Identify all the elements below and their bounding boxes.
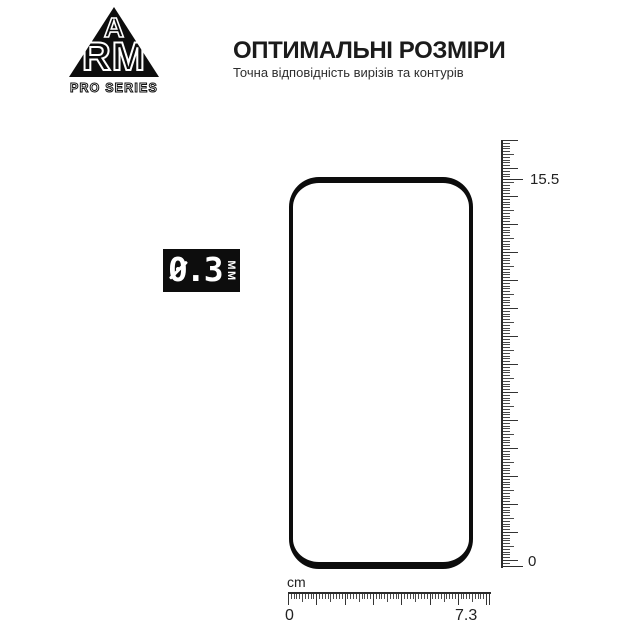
ruler-tick bbox=[503, 479, 510, 480]
ruler-tick bbox=[370, 594, 371, 599]
ruler-tick bbox=[503, 179, 523, 180]
ruler-tick bbox=[503, 372, 510, 373]
ruler-tick bbox=[466, 594, 467, 599]
ruler-tick bbox=[503, 146, 510, 147]
thickness-unit: MM bbox=[225, 260, 237, 281]
ruler-tick bbox=[503, 412, 510, 413]
ruler-tick bbox=[503, 417, 510, 418]
ruler-tick bbox=[503, 311, 510, 312]
horizontal-ruler-max-label: 7.3 bbox=[455, 607, 477, 625]
ruler-tick bbox=[503, 330, 510, 331]
ruler-tick bbox=[503, 252, 518, 253]
ruler-tick bbox=[373, 594, 374, 605]
ruler-tick bbox=[503, 300, 510, 301]
ruler-tick bbox=[503, 381, 510, 382]
ruler-tick bbox=[503, 339, 510, 340]
ruler-tick bbox=[503, 255, 510, 256]
ruler-tick bbox=[503, 143, 510, 144]
ruler-tick bbox=[503, 496, 510, 497]
ruler-tick bbox=[503, 414, 510, 415]
ruler-tick bbox=[503, 521, 510, 522]
ruler-tick bbox=[503, 260, 510, 261]
ruler-tick bbox=[313, 594, 314, 599]
ruler-tick bbox=[503, 224, 518, 225]
ruler-tick bbox=[503, 277, 510, 278]
ruler-tick bbox=[503, 193, 510, 194]
ruler-tick bbox=[432, 594, 433, 599]
ruler-tick bbox=[503, 470, 510, 471]
ruler-tick bbox=[396, 594, 397, 599]
ruler-tick bbox=[503, 221, 510, 222]
ruler-tick bbox=[455, 594, 456, 599]
ruler-tick bbox=[503, 557, 510, 558]
ruler-tick bbox=[503, 431, 510, 432]
ruler-tick bbox=[367, 594, 368, 599]
ruler-tick bbox=[330, 594, 331, 602]
ruler-tick bbox=[503, 532, 518, 533]
ruler-tick bbox=[503, 540, 510, 541]
ruler-tick bbox=[503, 238, 514, 239]
ruler-tick bbox=[503, 487, 510, 488]
ruler-tick bbox=[503, 420, 518, 421]
ruler-tick bbox=[503, 353, 510, 354]
ruler-tick bbox=[503, 462, 514, 463]
ruler-tick bbox=[489, 594, 490, 605]
ruler-tick bbox=[421, 594, 422, 599]
ruler-tick bbox=[415, 594, 416, 602]
ruler-tick bbox=[503, 375, 510, 376]
ruler-tick bbox=[503, 364, 518, 365]
ruler-tick bbox=[503, 526, 510, 527]
ruler-tick bbox=[503, 325, 510, 326]
ruler-tick bbox=[339, 594, 340, 599]
ruler-tick bbox=[503, 202, 510, 203]
ruler-tick bbox=[503, 358, 510, 359]
ruler-tick bbox=[503, 367, 510, 368]
ruler-tick bbox=[503, 283, 510, 284]
vertical-ruler bbox=[501, 140, 527, 568]
ruler-tick bbox=[503, 437, 510, 438]
ruler-tick bbox=[503, 538, 510, 539]
ruler-tick bbox=[503, 535, 510, 536]
ruler-tick bbox=[503, 398, 510, 399]
infographic-canvas: A RM PRO SERIES ОПТИМАЛЬНІ РОЗМІРИ Точна… bbox=[0, 0, 630, 630]
ruler-tick bbox=[503, 151, 510, 152]
ruler-tick bbox=[390, 594, 391, 599]
ruler-tick bbox=[336, 594, 337, 599]
ruler-tick bbox=[356, 594, 357, 599]
ruler-tick bbox=[435, 594, 436, 599]
ruler-tick bbox=[401, 594, 402, 605]
ruler-tick bbox=[503, 448, 518, 449]
ruler-tick bbox=[393, 594, 394, 599]
ruler-tick bbox=[503, 154, 514, 155]
ruler-tick bbox=[503, 182, 514, 183]
ruler-tick bbox=[503, 498, 510, 499]
ruler-tick bbox=[503, 543, 510, 544]
ruler-tick bbox=[503, 272, 510, 273]
ruler-tick bbox=[404, 594, 405, 599]
ruler-tick bbox=[503, 328, 510, 329]
ruler-tick bbox=[503, 297, 510, 298]
ruler-tick bbox=[503, 165, 510, 166]
ruler-tick bbox=[452, 594, 453, 599]
ruler-tick bbox=[362, 594, 363, 599]
ruler-tick bbox=[503, 473, 510, 474]
ruler-tick bbox=[503, 336, 518, 337]
ruler-tick bbox=[503, 459, 510, 460]
ruler-tick bbox=[503, 213, 510, 214]
ruler-tick bbox=[503, 319, 510, 320]
ruler-tick bbox=[302, 594, 303, 602]
ruler-tick bbox=[291, 594, 292, 599]
ruler-tick bbox=[503, 308, 518, 309]
ruler-tick bbox=[333, 594, 334, 599]
ruler-tick bbox=[413, 594, 414, 599]
ruler-tick bbox=[503, 305, 510, 306]
ruler-tick bbox=[503, 482, 510, 483]
ruler-tick bbox=[503, 515, 510, 516]
ruler-tick bbox=[503, 196, 518, 197]
ruler-tick bbox=[503, 274, 510, 275]
page-subtitle: Точна відповідність вирізів та контурів bbox=[233, 66, 505, 80]
ruler-tick bbox=[299, 594, 300, 599]
ruler-tick bbox=[503, 566, 523, 567]
ruler-tick bbox=[478, 594, 479, 599]
ruler-tick bbox=[342, 594, 343, 599]
ruler-tick bbox=[503, 386, 510, 387]
ruler-tick bbox=[503, 347, 510, 348]
ruler-tick bbox=[503, 493, 510, 494]
ruler-tick bbox=[503, 370, 510, 371]
ruler-tick bbox=[503, 232, 510, 233]
ruler-tick bbox=[503, 476, 518, 477]
ruler-tick bbox=[503, 344, 510, 345]
ruler-tick bbox=[503, 218, 510, 219]
ruler-tick bbox=[407, 594, 408, 599]
ruler-tick bbox=[503, 227, 510, 228]
ruler-tick bbox=[503, 442, 510, 443]
ruler-tick bbox=[503, 560, 518, 561]
ruler-tick bbox=[503, 501, 510, 502]
screen-protector-outline bbox=[289, 177, 473, 569]
ruler-tick bbox=[503, 434, 514, 435]
ruler-tick bbox=[427, 594, 428, 599]
ruler-tick bbox=[503, 294, 514, 295]
horizontal-ruler-unit-label: cm bbox=[287, 574, 306, 590]
ruler-tick bbox=[503, 246, 510, 247]
page-title: ОПТИМАЛЬНІ РОЗМІРИ bbox=[233, 40, 505, 62]
ruler-tick bbox=[503, 468, 510, 469]
ruler-tick bbox=[316, 594, 317, 605]
thickness-badge: 0.3 MM bbox=[163, 249, 240, 292]
ruler-tick bbox=[503, 504, 518, 505]
ruler-tick bbox=[503, 440, 510, 441]
ruler-tick bbox=[503, 157, 510, 158]
ruler-tick bbox=[483, 594, 484, 599]
ruler-tick bbox=[503, 465, 510, 466]
ruler-tick bbox=[503, 288, 510, 289]
ruler-tick bbox=[376, 594, 377, 599]
ruler-tick bbox=[503, 342, 510, 343]
ruler-tick bbox=[503, 378, 514, 379]
ruler-tick bbox=[503, 176, 510, 177]
ruler-tick bbox=[430, 594, 431, 605]
ruler-tick bbox=[503, 230, 510, 231]
ruler-tick bbox=[503, 392, 518, 393]
ruler-tick bbox=[503, 286, 510, 287]
ruler-tick bbox=[503, 316, 510, 317]
ruler-tick bbox=[503, 322, 514, 323]
ruler-tick bbox=[503, 456, 510, 457]
ruler-tick bbox=[503, 162, 510, 163]
ruler-tick bbox=[503, 384, 510, 385]
ruler-tick bbox=[503, 241, 510, 242]
ruler-tick bbox=[410, 594, 411, 599]
ruler-tick bbox=[503, 266, 514, 267]
ruler-tick bbox=[463, 594, 464, 599]
ruler-tick bbox=[503, 174, 510, 175]
ruler-tick bbox=[359, 594, 360, 602]
ruler-tick bbox=[353, 594, 354, 599]
ruler-tick bbox=[503, 529, 510, 530]
ruler-tick bbox=[503, 426, 510, 427]
ruler-tick bbox=[441, 594, 442, 599]
ruler-tick bbox=[503, 207, 510, 208]
ruler-tick bbox=[503, 484, 510, 485]
ruler-tick bbox=[387, 594, 388, 602]
ruler-tick bbox=[305, 594, 306, 599]
ruler-tick bbox=[296, 594, 297, 599]
ruler-tick bbox=[503, 552, 510, 553]
ruler-tick bbox=[503, 160, 510, 161]
ruler-tick bbox=[503, 518, 514, 519]
ruler-tick bbox=[480, 594, 481, 599]
ruler-tick bbox=[503, 395, 510, 396]
ruler-tick bbox=[503, 199, 510, 200]
ruler-tick bbox=[503, 171, 510, 172]
ruler-tick bbox=[308, 594, 309, 599]
ruler-tick bbox=[503, 314, 510, 315]
ruler-tick bbox=[458, 594, 459, 605]
ruler-tick bbox=[503, 546, 514, 547]
ruler-tick bbox=[503, 389, 510, 390]
ruler-tick bbox=[503, 190, 510, 191]
ruler-tick bbox=[503, 507, 510, 508]
ruler-tick bbox=[379, 594, 380, 599]
ruler-tick bbox=[503, 280, 518, 281]
arm-logo: A RM PRO SERIES bbox=[68, 6, 160, 94]
logo-series-label: PRO SERIES bbox=[70, 81, 158, 94]
ruler-tick bbox=[503, 361, 510, 362]
ruler-tick bbox=[503, 454, 510, 455]
ruler-tick bbox=[503, 524, 510, 525]
ruler-tick bbox=[438, 594, 439, 599]
ruler-tick bbox=[449, 594, 450, 599]
ruler-tick bbox=[503, 400, 510, 401]
horizontal-ruler-min-label: 0 bbox=[285, 607, 294, 625]
ruler-tick bbox=[381, 594, 382, 599]
ruler-tick bbox=[461, 594, 462, 599]
ruler-tick bbox=[503, 510, 510, 511]
ruler-tick bbox=[503, 168, 518, 169]
ruler-tick bbox=[503, 403, 510, 404]
ruler-tick bbox=[503, 244, 510, 245]
ruler-tick bbox=[503, 563, 510, 564]
ruler-tick bbox=[503, 204, 510, 205]
ruler-tick bbox=[503, 140, 518, 141]
ruler-tick bbox=[503, 490, 514, 491]
vertical-ruler-max-label: 15.5 bbox=[530, 171, 559, 188]
ruler-tick bbox=[444, 594, 445, 602]
ruler-tick bbox=[311, 594, 312, 599]
ruler-tick bbox=[418, 594, 419, 599]
ruler-tick bbox=[503, 428, 510, 429]
ruler-tick bbox=[503, 356, 510, 357]
ruler-tick bbox=[503, 512, 510, 513]
ruler-tick bbox=[446, 594, 447, 599]
ruler-tick bbox=[503, 451, 510, 452]
ruler-tick bbox=[325, 594, 326, 599]
ruler-tick bbox=[398, 594, 399, 599]
ruler-tick bbox=[503, 423, 510, 424]
ruler-tick bbox=[503, 263, 510, 264]
ruler-tick bbox=[503, 258, 510, 259]
ruler-tick bbox=[503, 549, 510, 550]
ruler-tick bbox=[503, 350, 514, 351]
ruler-tick bbox=[472, 594, 473, 602]
ruler-tick bbox=[503, 333, 510, 334]
ruler-tick bbox=[288, 594, 289, 605]
ruler-tick bbox=[503, 409, 510, 410]
ruler-tick bbox=[503, 210, 514, 211]
ruler-tick bbox=[322, 594, 323, 599]
ruler-tick bbox=[503, 269, 510, 270]
ruler-tick bbox=[347, 594, 348, 599]
ruler-tick bbox=[486, 594, 487, 605]
ruler-tick bbox=[503, 249, 510, 250]
ruler-tick bbox=[364, 594, 365, 599]
ruler-tick bbox=[345, 594, 346, 605]
ruler-tick bbox=[475, 594, 476, 599]
header: ОПТИМАЛЬНІ РОЗМІРИ Точна відповідність в… bbox=[233, 40, 505, 80]
ruler-tick bbox=[503, 216, 510, 217]
ruler-tick bbox=[503, 406, 514, 407]
ruler-tick bbox=[503, 188, 510, 189]
ruler-tick bbox=[503, 291, 510, 292]
ruler-tick bbox=[424, 594, 425, 599]
ruler-tick bbox=[503, 554, 510, 555]
logo-letters-rm: RM bbox=[82, 35, 146, 79]
ruler-tick bbox=[294, 594, 295, 599]
ruler-tick bbox=[503, 235, 510, 236]
ruler-tick bbox=[503, 185, 510, 186]
ruler-tick bbox=[319, 594, 320, 599]
ruler-tick bbox=[350, 594, 351, 599]
ruler-tick bbox=[469, 594, 470, 599]
ruler-tick bbox=[503, 148, 510, 149]
vertical-ruler-min-label: 0 bbox=[528, 553, 536, 570]
ruler-tick bbox=[328, 594, 329, 599]
horizontal-ruler bbox=[288, 592, 494, 608]
ruler-tick bbox=[384, 594, 385, 599]
ruler-tick bbox=[503, 445, 510, 446]
ruler-tick bbox=[503, 302, 510, 303]
